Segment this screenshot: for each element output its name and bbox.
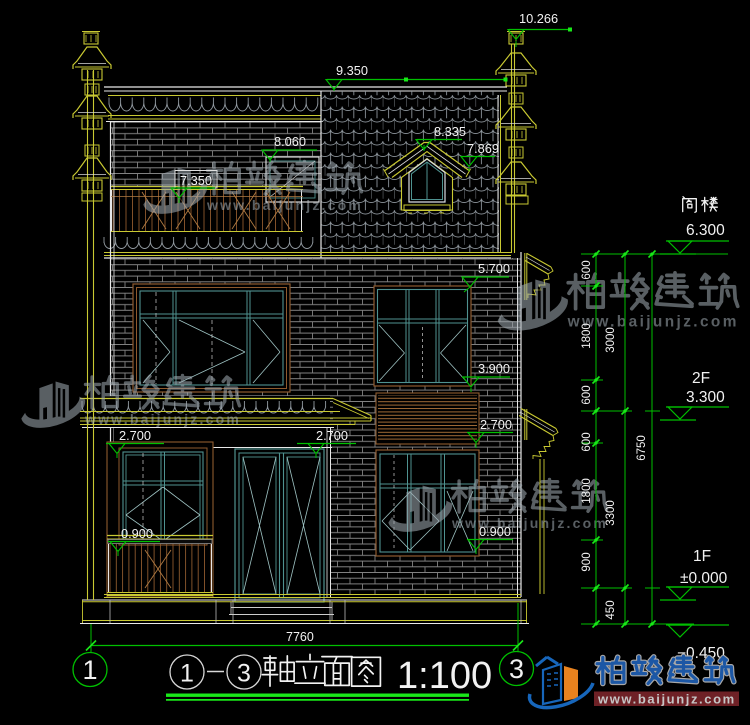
svg-text:450: 450 [605, 600, 617, 619]
svg-text:7.869: 7.869 [467, 141, 499, 156]
svg-text:7760: 7760 [286, 630, 314, 644]
svg-text:9.350: 9.350 [336, 63, 368, 78]
svg-text:0.900: 0.900 [121, 526, 153, 541]
svg-text:7.350: 7.350 [180, 173, 212, 188]
svg-text:1800: 1800 [581, 478, 593, 504]
svg-text:600: 600 [581, 260, 593, 279]
svg-text:6750: 6750 [636, 435, 648, 461]
svg-text:www.baijunjz.com: www.baijunjz.com [84, 411, 241, 427]
svg-text:2.700: 2.700 [316, 428, 348, 443]
svg-text:2.700: 2.700 [119, 428, 151, 443]
svg-text:3000: 3000 [605, 327, 617, 353]
svg-text:www.baijunjz.com: www.baijunjz.com [206, 197, 363, 213]
svg-text:±0.000: ±0.000 [680, 570, 728, 587]
svg-text:1: 1 [82, 655, 97, 685]
svg-text:2.700: 2.700 [480, 417, 512, 432]
svg-text:600: 600 [581, 385, 593, 404]
svg-text:8.335: 8.335 [434, 124, 466, 139]
svg-text:6.300: 6.300 [686, 222, 725, 239]
svg-text:10.266: 10.266 [519, 11, 558, 26]
svg-text:0.900: 0.900 [479, 524, 511, 539]
svg-text:www.baijunjz.com: www.baijunjz.com [597, 692, 736, 707]
svg-text:5.700: 5.700 [478, 261, 510, 276]
svg-text:3.900: 3.900 [478, 361, 510, 376]
svg-text:1F: 1F [693, 548, 711, 565]
svg-text:3300: 3300 [605, 500, 617, 526]
svg-text:8.060: 8.060 [274, 134, 306, 149]
svg-text:www.baijunjz.com: www.baijunjz.com [451, 515, 608, 531]
svg-text:3: 3 [509, 654, 524, 684]
svg-text:1800: 1800 [581, 323, 593, 349]
svg-text:3: 3 [237, 660, 251, 688]
svg-text:600: 600 [581, 432, 593, 451]
svg-text:1: 1 [180, 660, 194, 688]
svg-text:2F: 2F [692, 370, 710, 387]
svg-text:900: 900 [581, 552, 593, 571]
svg-text:3.300: 3.300 [686, 389, 725, 406]
svg-text:1:100: 1:100 [397, 655, 492, 697]
